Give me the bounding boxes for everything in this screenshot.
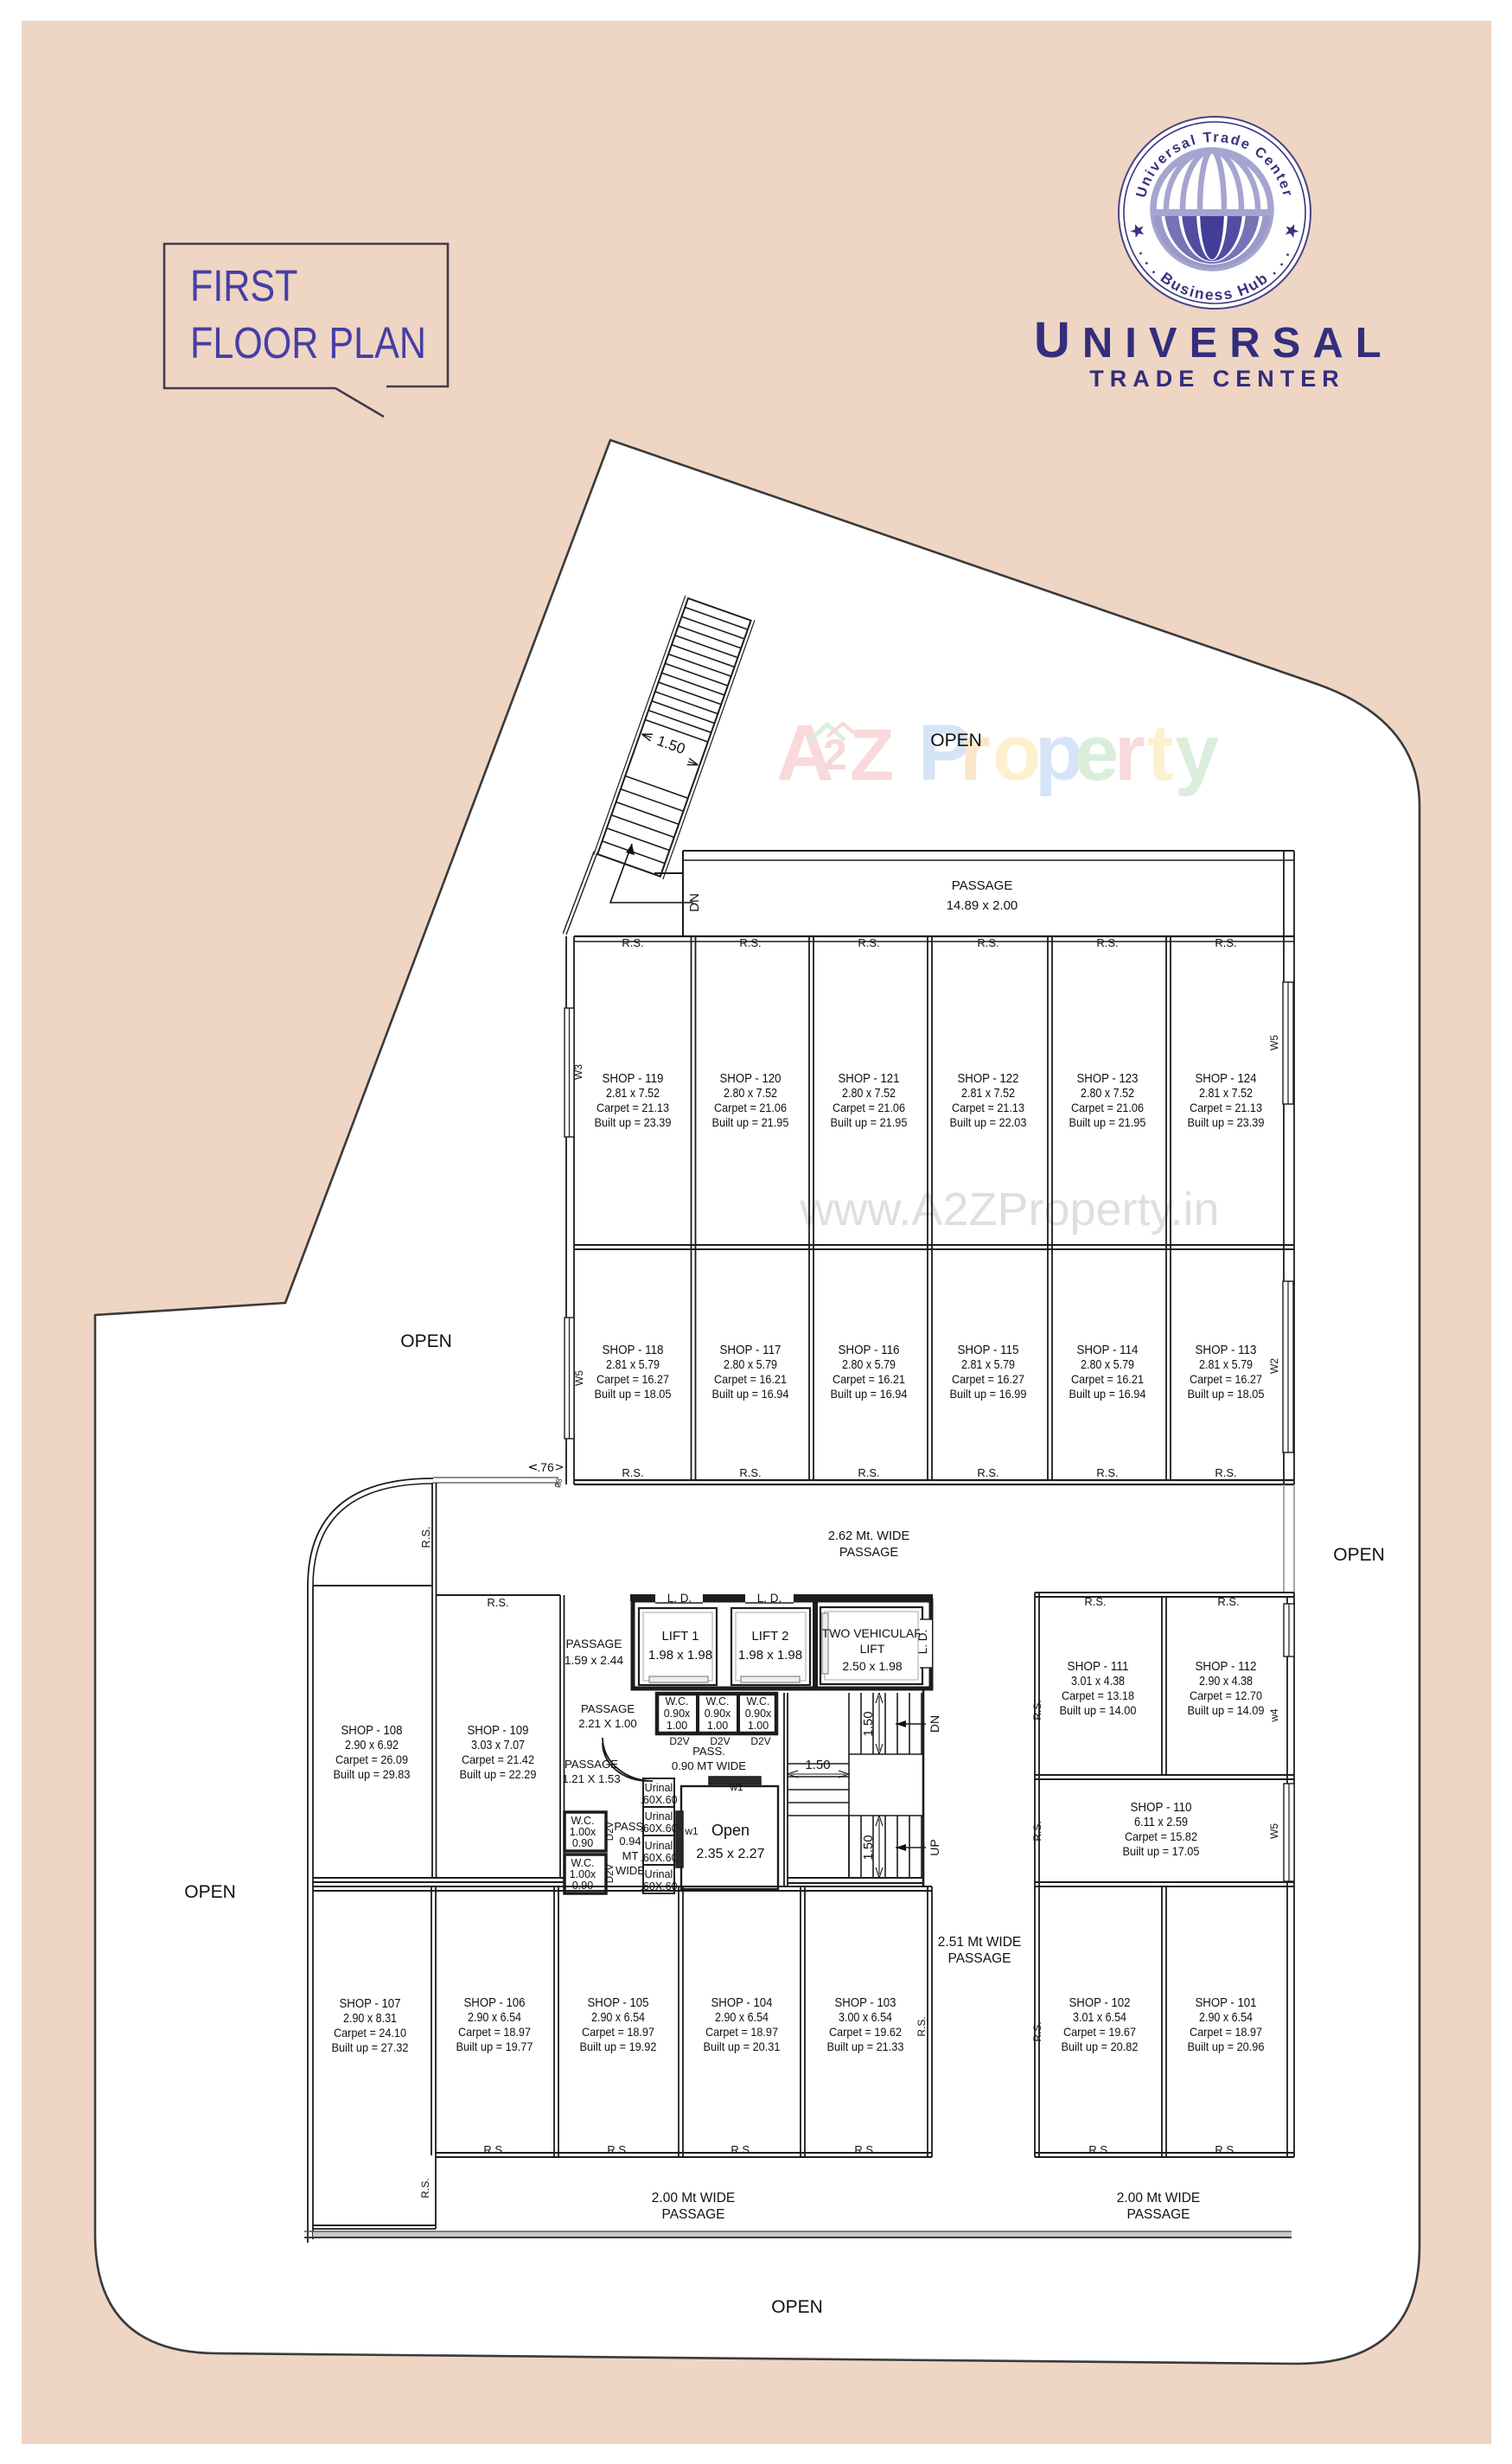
svg-text:1.50: 1.50 <box>805 1758 830 1772</box>
svg-text:SHOP - 113: SHOP - 113 <box>1196 1344 1257 1357</box>
svg-text:Carpet = 19.62: Carpet = 19.62 <box>829 2026 902 2039</box>
svg-text:LIFT: LIFT <box>860 1642 885 1656</box>
svg-text:Carpet = 21.06: Carpet = 21.06 <box>714 1101 787 1114</box>
svg-text:1.50: 1.50 <box>861 1835 876 1860</box>
svg-text:W3: W3 <box>572 1064 584 1080</box>
svg-text:0.90x: 0.90x <box>664 1708 691 1720</box>
svg-text:2.90 x 6.54: 2.90 x 6.54 <box>1199 2011 1253 2025</box>
svg-text:PASSAGE: PASSAGE <box>566 1637 622 1650</box>
svg-text:W.C.: W.C. <box>746 1695 769 1708</box>
svg-text:2.90 x 6.92: 2.90 x 6.92 <box>345 1739 399 1752</box>
svg-text:PASSAGE: PASSAGE <box>565 1758 618 1771</box>
svg-text:Carpet = 21.13: Carpet = 21.13 <box>597 1101 669 1114</box>
svg-text:SHOP - 115: SHOP - 115 <box>958 1344 1019 1357</box>
svg-text:OPEN: OPEN <box>771 2297 823 2317</box>
svg-text:r: r <box>960 709 991 797</box>
svg-text:L. D.: L. D. <box>757 1592 782 1605</box>
svg-text:Carpet = 21.13: Carpet = 21.13 <box>952 1101 1024 1114</box>
svg-text:R.S.: R.S. <box>419 1526 432 1548</box>
svg-text:D2V: D2V <box>669 1735 689 1747</box>
svg-text:2.81 x 7.52: 2.81 x 7.52 <box>606 1087 660 1101</box>
svg-text:3.01 x 6.54: 3.01 x 6.54 <box>1073 2011 1126 2025</box>
svg-text:e: e <box>1075 709 1119 797</box>
svg-text:1.00x: 1.00x <box>570 1826 597 1838</box>
svg-text:R.S.: R.S. <box>1084 1595 1106 1608</box>
svg-text:1.98 x 1.98: 1.98 x 1.98 <box>738 1648 802 1663</box>
svg-text:Built up = 21.95: Built up = 21.95 <box>831 1116 908 1129</box>
svg-text:SHOP - 119: SHOP - 119 <box>603 1072 664 1086</box>
svg-text:UP: UP <box>928 1839 941 1855</box>
svg-text:SHOP - 122: SHOP - 122 <box>958 1072 1019 1086</box>
svg-text:r: r <box>1114 709 1145 797</box>
svg-text:Built up = 20.82: Built up = 20.82 <box>1062 2040 1139 2053</box>
svg-text:Z: Z <box>850 714 894 795</box>
svg-text:PASS.: PASS. <box>692 1745 725 1758</box>
svg-text:R.S.: R.S. <box>1031 2021 1043 2041</box>
svg-text:SHOP - 101: SHOP - 101 <box>1196 1996 1257 2010</box>
svg-text:DN: DN <box>928 1715 941 1733</box>
svg-text:1.21 X 1.53: 1.21 X 1.53 <box>562 1772 620 1785</box>
svg-text:SHOP - 104: SHOP - 104 <box>711 1996 773 2010</box>
svg-text:SHOP - 120: SHOP - 120 <box>720 1072 782 1086</box>
svg-text:R.S.: R.S. <box>487 1596 508 1609</box>
svg-text:Urinal: Urinal <box>645 1840 673 1852</box>
svg-text:Built up = 18.05: Built up = 18.05 <box>1188 1388 1265 1401</box>
svg-text:R.S.: R.S. <box>1096 1466 1118 1479</box>
svg-text:R.S.: R.S. <box>483 2143 505 2156</box>
svg-text:0.90: 0.90 <box>572 1837 593 1849</box>
svg-text:UNIVERSAL: UNIVERSAL <box>1034 312 1394 368</box>
svg-text:WIDE: WIDE <box>616 1864 645 1877</box>
svg-text:PASSAGE: PASSAGE <box>948 1951 1011 1966</box>
svg-text:TWO VEHICULAR: TWO VEHICULAR <box>822 1626 923 1640</box>
svg-text:Carpet = 19.67: Carpet = 19.67 <box>1063 2026 1136 2039</box>
svg-text:OPEN: OPEN <box>400 1331 452 1351</box>
svg-text:2.81 x 5.79: 2.81 x 5.79 <box>1199 1358 1253 1372</box>
svg-text:Carpet = 15.82: Carpet = 15.82 <box>1125 1830 1197 1843</box>
svg-text:1.50: 1.50 <box>861 1711 876 1736</box>
svg-text:Built up = 17.05: Built up = 17.05 <box>1123 1845 1200 1858</box>
svg-text:Built up = 19.92: Built up = 19.92 <box>580 2040 657 2053</box>
svg-text:Carpet = 18.97: Carpet = 18.97 <box>705 2026 778 2039</box>
svg-text:0.90x: 0.90x <box>745 1708 772 1720</box>
svg-text:w1: w1 <box>729 1781 743 1793</box>
svg-text:0.90: 0.90 <box>572 1880 593 1892</box>
svg-text:SHOP - 123: SHOP - 123 <box>1077 1072 1139 1086</box>
svg-text:Carpet = 16.21: Carpet = 16.21 <box>833 1373 905 1386</box>
svg-text:PASSAGE: PASSAGE <box>662 2207 725 2222</box>
svg-text:LIFT 1: LIFT 1 <box>661 1629 699 1644</box>
svg-text:Carpet = 21.06: Carpet = 21.06 <box>833 1101 905 1114</box>
svg-text:R.S.: R.S. <box>854 2143 876 2156</box>
svg-text:2.81 x 5.79: 2.81 x 5.79 <box>961 1358 1015 1372</box>
svg-text:Carpet = 21.42: Carpet = 21.42 <box>462 1753 534 1766</box>
svg-text:PASSAGE: PASSAGE <box>581 1702 635 1715</box>
svg-text:t: t <box>1147 709 1174 797</box>
svg-text:Carpet = 21.06: Carpet = 21.06 <box>1071 1101 1144 1114</box>
svg-text:Built up = 23.39: Built up = 23.39 <box>1188 1116 1265 1129</box>
svg-text:Carpet = 13.18: Carpet = 13.18 <box>1062 1689 1134 1702</box>
svg-text:R.S.: R.S. <box>739 1466 761 1479</box>
svg-text:R.S.: R.S. <box>730 2143 752 2156</box>
svg-text:PASSAGE: PASSAGE <box>952 878 1013 893</box>
svg-text:2.51 Mt WIDE: 2.51 Mt WIDE <box>938 1935 1021 1950</box>
svg-text:R.S.: R.S. <box>1215 936 1236 949</box>
svg-text:Built up = 22.29: Built up = 22.29 <box>460 1768 537 1781</box>
svg-text:SHOP - 121: SHOP - 121 <box>839 1072 900 1086</box>
svg-text:R.S.: R.S. <box>607 2143 628 2156</box>
svg-text:2.81 x 5.79: 2.81 x 5.79 <box>606 1358 660 1372</box>
svg-text:Built up = 16.94: Built up = 16.94 <box>831 1388 908 1401</box>
svg-text:0.90x: 0.90x <box>705 1708 731 1720</box>
svg-text:OPEN: OPEN <box>1333 1545 1385 1565</box>
svg-text:2.80 x 5.79: 2.80 x 5.79 <box>724 1358 777 1372</box>
svg-text:Carpet = 21.13: Carpet = 21.13 <box>1190 1101 1262 1114</box>
svg-text:W.C.: W.C. <box>571 1857 594 1869</box>
svg-text:SHOP - 108: SHOP - 108 <box>341 1724 403 1738</box>
svg-text:W5: W5 <box>573 1370 585 1386</box>
svg-text:R.S.: R.S. <box>739 936 761 949</box>
svg-text:2.80 x 7.52: 2.80 x 7.52 <box>724 1087 777 1101</box>
svg-text:6.11 x 2.59: 6.11 x 2.59 <box>1134 1816 1188 1829</box>
svg-text:.60X.60: .60X.60 <box>640 1822 677 1835</box>
svg-text:W.C.: W.C. <box>571 1815 594 1827</box>
svg-text:R.S.: R.S. <box>1031 1821 1043 1841</box>
svg-text:2.90 x 8.31: 2.90 x 8.31 <box>343 2012 397 2026</box>
svg-text:SHOP - 116: SHOP - 116 <box>839 1344 900 1357</box>
svg-text:W5: W5 <box>1268 1823 1280 1839</box>
svg-text:OPEN: OPEN <box>930 731 982 750</box>
svg-text:3.03 x 7.07: 3.03 x 7.07 <box>471 1739 525 1752</box>
svg-text:R.S.: R.S. <box>622 1466 643 1479</box>
svg-text:R.S.: R.S. <box>858 936 879 949</box>
svg-text:MT: MT <box>622 1849 639 1862</box>
svg-text:Carpet = 18.97: Carpet = 18.97 <box>458 2026 531 2039</box>
svg-text:R.S.: R.S. <box>1096 936 1118 949</box>
svg-text:FIRST: FIRST <box>190 262 297 311</box>
svg-text:DN: DN <box>687 893 702 912</box>
svg-text:PASSAGE: PASSAGE <box>1127 2207 1190 2222</box>
svg-text:2.90 x 6.54: 2.90 x 6.54 <box>591 2011 645 2025</box>
svg-text:w1: w1 <box>684 1825 699 1837</box>
svg-text:Open: Open <box>711 1822 750 1839</box>
svg-text:SHOP - 114: SHOP - 114 <box>1077 1344 1139 1357</box>
svg-text:Carpet = 16.27: Carpet = 16.27 <box>952 1373 1024 1386</box>
svg-text:Built up = 14.00: Built up = 14.00 <box>1060 1704 1137 1717</box>
svg-text:SHOP - 107: SHOP - 107 <box>340 1997 401 2011</box>
svg-text:Carpet = 24.10: Carpet = 24.10 <box>334 2027 406 2040</box>
svg-text:www.A2ZProperty.in: www.A2ZProperty.in <box>799 1184 1219 1235</box>
svg-text:SHOP - 112: SHOP - 112 <box>1196 1660 1257 1674</box>
svg-text:W2: W2 <box>1268 1358 1280 1374</box>
svg-text:Built up = 16.94: Built up = 16.94 <box>1069 1388 1146 1401</box>
svg-text:2.00 Mt WIDE: 2.00 Mt WIDE <box>1117 2191 1200 2205</box>
svg-text:SHOP - 110: SHOP - 110 <box>1131 1801 1192 1815</box>
svg-text:Carpet = 16.21: Carpet = 16.21 <box>714 1373 787 1386</box>
svg-text:2.80 x 7.52: 2.80 x 7.52 <box>1081 1087 1134 1101</box>
svg-text:LIFT 2: LIFT 2 <box>751 1629 788 1644</box>
svg-text:Carpet = 26.09: Carpet = 26.09 <box>335 1753 408 1766</box>
svg-text:2.21 X 1.00: 2.21 X 1.00 <box>578 1717 636 1730</box>
svg-text:SHOP - 102: SHOP - 102 <box>1069 1996 1131 2010</box>
svg-text:Built up = 16.94: Built up = 16.94 <box>712 1388 789 1401</box>
svg-text:2.90 x 4.38: 2.90 x 4.38 <box>1199 1675 1253 1688</box>
svg-text:Carpet = 16.21: Carpet = 16.21 <box>1071 1373 1144 1386</box>
svg-text:1.00: 1.00 <box>748 1720 769 1732</box>
svg-text:Built up = 19.77: Built up = 19.77 <box>456 2040 533 2053</box>
svg-text:2.80 x 7.52: 2.80 x 7.52 <box>842 1087 896 1101</box>
svg-text:R.S.: R.S. <box>977 936 998 949</box>
svg-text:Carpet = 16.27: Carpet = 16.27 <box>597 1373 669 1386</box>
svg-text:W.C.: W.C. <box>665 1695 688 1708</box>
svg-text:Built up = 20.31: Built up = 20.31 <box>704 2040 781 2053</box>
svg-text:1.00: 1.00 <box>707 1720 728 1732</box>
svg-text:SHOP - 103: SHOP - 103 <box>835 1996 896 2010</box>
svg-text:Urinal: Urinal <box>645 1810 673 1822</box>
svg-text:y: y <box>1175 709 1219 797</box>
svg-text:SHOP - 105: SHOP - 105 <box>588 1996 649 2010</box>
svg-text:Carpet = 18.97: Carpet = 18.97 <box>582 2026 654 2039</box>
svg-text:SHOP - 106: SHOP - 106 <box>464 1996 526 2010</box>
svg-text:PASSAGE: PASSAGE <box>839 1546 899 1560</box>
svg-text:2.80 x 5.79: 2.80 x 5.79 <box>842 1358 896 1372</box>
svg-text:2.81 x 7.52: 2.81 x 7.52 <box>1199 1087 1253 1101</box>
svg-text:SHOP - 117: SHOP - 117 <box>720 1344 782 1357</box>
svg-text:.60X.60: .60X.60 <box>640 1852 677 1864</box>
svg-text:W.C.: W.C. <box>705 1695 729 1708</box>
svg-text:Built up = 16.99: Built up = 16.99 <box>950 1388 1027 1401</box>
svg-text:1.59 x 2.44: 1.59 x 2.44 <box>565 1654 624 1667</box>
svg-text:Urinal: Urinal <box>645 1782 673 1794</box>
svg-text:Built up = 21.33: Built up = 21.33 <box>827 2040 904 2053</box>
svg-text:2.35 x 2.27: 2.35 x 2.27 <box>696 1847 764 1861</box>
svg-text:SHOP - 111: SHOP - 111 <box>1068 1660 1129 1674</box>
svg-text:1.00x: 1.00x <box>570 1868 597 1880</box>
svg-text:D2V: D2V <box>605 1863 616 1883</box>
svg-text:0.90 MT WIDE: 0.90 MT WIDE <box>672 1759 746 1772</box>
svg-text:R.S.: R.S. <box>419 2178 431 2198</box>
svg-text:R.S.: R.S. <box>1215 2143 1236 2156</box>
svg-text:Built up = 21.95: Built up = 21.95 <box>712 1116 789 1129</box>
svg-text:Built up = 18.05: Built up = 18.05 <box>595 1388 672 1401</box>
svg-text:SHOP - 118: SHOP - 118 <box>603 1344 664 1357</box>
svg-text:2.90 x 6.54: 2.90 x 6.54 <box>715 2011 769 2025</box>
svg-text:.60X.60: .60X.60 <box>640 1880 677 1893</box>
svg-text:Built up = 29.83: Built up = 29.83 <box>334 1768 411 1781</box>
svg-text:2.00 Mt WIDE: 2.00 Mt WIDE <box>652 2191 735 2205</box>
svg-text:2.62 Mt. WIDE: 2.62 Mt. WIDE <box>828 1529 910 1543</box>
svg-text:2.50 x 1.98: 2.50 x 1.98 <box>842 1659 902 1673</box>
svg-text:R.S.: R.S. <box>858 1466 879 1479</box>
svg-text:Built up = 21.95: Built up = 21.95 <box>1069 1116 1146 1129</box>
svg-text:R.S.: R.S. <box>1215 1466 1236 1479</box>
svg-text:2.80 x 5.79: 2.80 x 5.79 <box>1081 1358 1134 1372</box>
svg-text:2.90 x 6.54: 2.90 x 6.54 <box>468 2011 521 2025</box>
svg-text:D2V: D2V <box>750 1735 770 1747</box>
svg-text:w4: w4 <box>1268 1708 1280 1723</box>
svg-text:L. D.: L. D. <box>667 1592 692 1605</box>
svg-text:R.S.: R.S. <box>622 936 643 949</box>
svg-text:R.S.: R.S. <box>1217 1595 1239 1608</box>
svg-text:L. D.: L. D. <box>916 1630 929 1655</box>
svg-text:2.81 x 7.52: 2.81 x 7.52 <box>961 1087 1015 1101</box>
svg-text:1.00: 1.00 <box>667 1720 687 1732</box>
svg-text:.76: .76 <box>537 1460 554 1474</box>
svg-text:14.89 x 2.00: 14.89 x 2.00 <box>947 898 1018 913</box>
svg-text:SHOP - 124: SHOP - 124 <box>1196 1072 1257 1086</box>
svg-text:R.S.: R.S. <box>1031 1700 1043 1720</box>
svg-text:W5: W5 <box>1268 1035 1280 1050</box>
svg-text:.60X.60: .60X.60 <box>640 1794 677 1806</box>
svg-text:0.94: 0.94 <box>619 1835 641 1848</box>
svg-text:o: o <box>992 709 1041 797</box>
svg-text:FLOOR PLAN: FLOOR PLAN <box>190 319 426 368</box>
svg-text:R.S.: R.S. <box>977 1466 998 1479</box>
svg-text:3.00 x 6.54: 3.00 x 6.54 <box>839 2011 892 2025</box>
svg-text:3.01 x 4.38: 3.01 x 4.38 <box>1071 1675 1125 1688</box>
svg-text:Built up = 27.32: Built up = 27.32 <box>332 2041 409 2054</box>
svg-text:R.S.: R.S. <box>915 2016 928 2036</box>
svg-text:SHOP - 109: SHOP - 109 <box>468 1724 529 1738</box>
svg-text:Carpet = 16.27: Carpet = 16.27 <box>1190 1373 1262 1386</box>
svg-text:Built up = 23.39: Built up = 23.39 <box>595 1116 672 1129</box>
svg-text:TRADE CENTER: TRADE CENTER <box>1089 366 1345 392</box>
svg-text:Built up = 14.09: Built up = 14.09 <box>1188 1704 1265 1717</box>
svg-text:R.S.: R.S. <box>1088 2143 1110 2156</box>
svg-text:Urinal: Urinal <box>645 1868 673 1880</box>
svg-text:Carpet = 12.70: Carpet = 12.70 <box>1190 1689 1262 1702</box>
svg-text:Built up = 20.96: Built up = 20.96 <box>1188 2040 1265 2053</box>
svg-text:Carpet = 18.97: Carpet = 18.97 <box>1190 2026 1262 2039</box>
svg-text:OPEN: OPEN <box>184 1882 236 1902</box>
svg-text:1.98 x 1.98: 1.98 x 1.98 <box>648 1648 712 1663</box>
svg-text:Built up = 22.03: Built up = 22.03 <box>950 1116 1027 1129</box>
